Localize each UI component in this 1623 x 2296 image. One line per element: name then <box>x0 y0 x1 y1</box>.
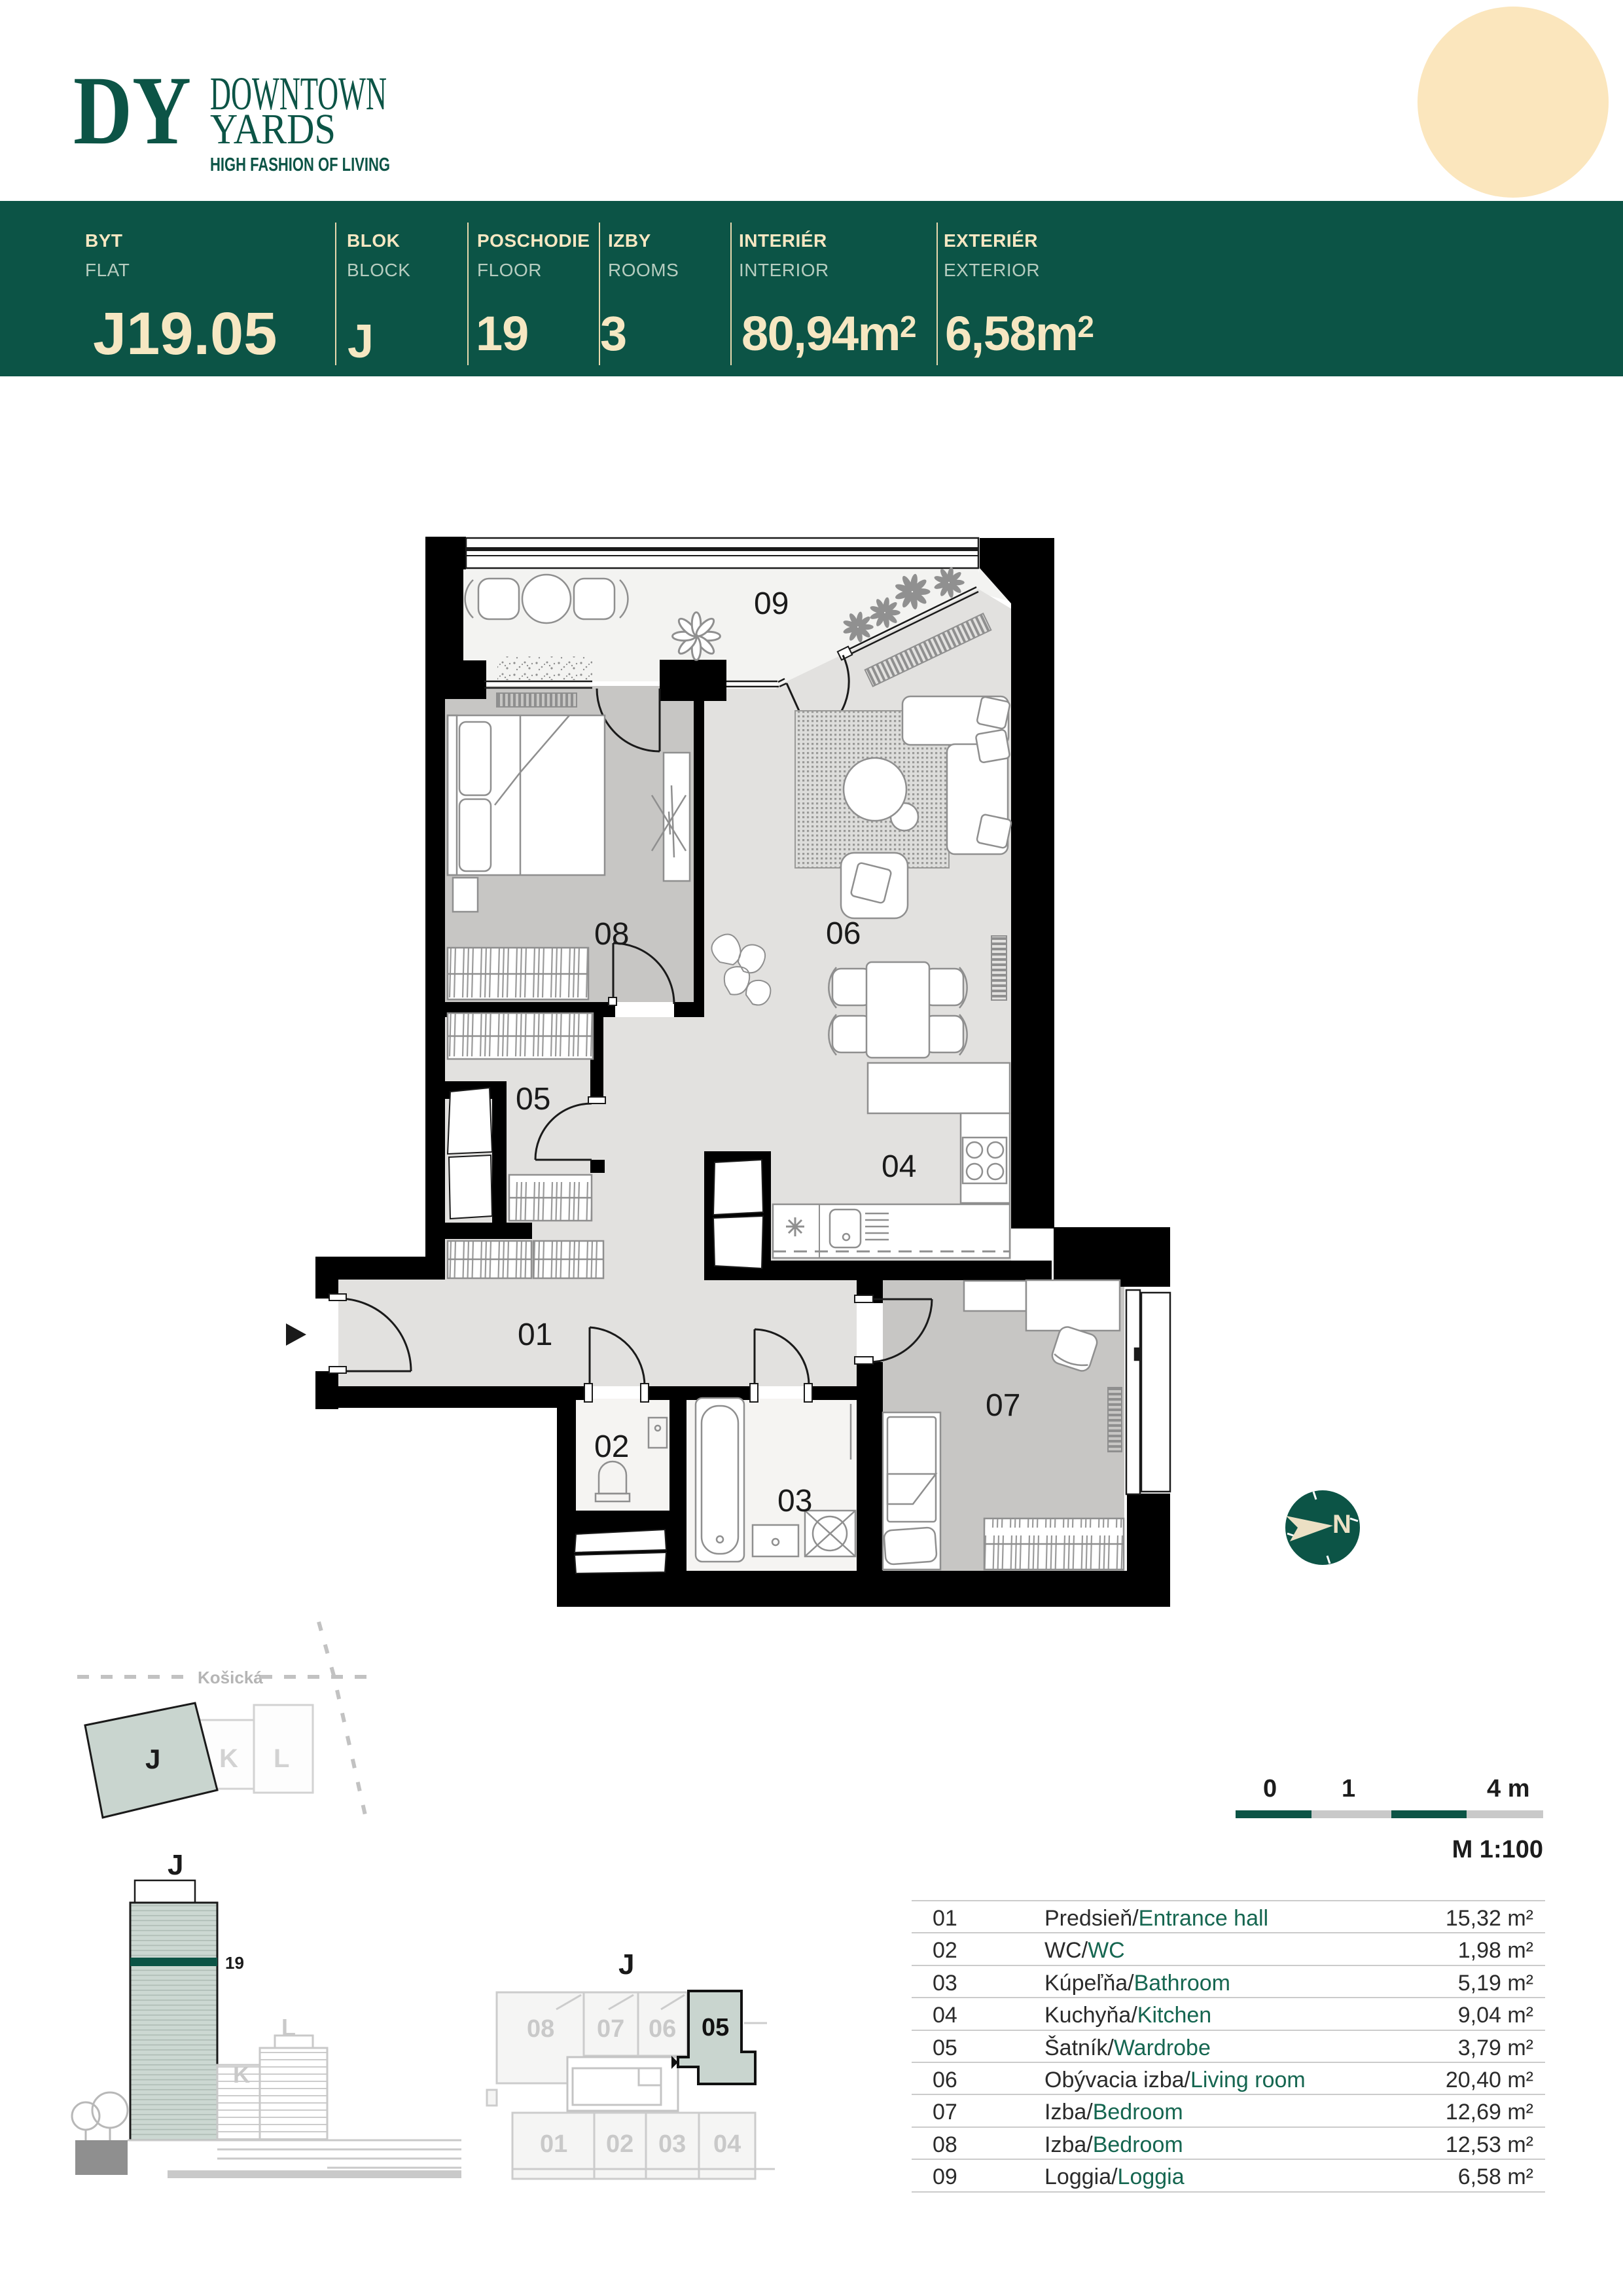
svg-text:04: 04 <box>713 2130 741 2158</box>
svg-text:05: 05 <box>702 2014 729 2041</box>
svg-text:06: 06 <box>649 2015 676 2043</box>
svg-text:08: 08 <box>594 917 629 952</box>
svg-text:J: J <box>618 1948 634 1981</box>
svg-text:K: K <box>219 1744 238 1773</box>
svg-text:L: L <box>281 2014 296 2041</box>
svg-text:05: 05 <box>516 1082 550 1117</box>
svg-text:08: 08 <box>527 2015 554 2043</box>
svg-text:07: 07 <box>986 1388 1020 1423</box>
svg-text:N: N <box>1332 1510 1351 1539</box>
svg-text:07: 07 <box>597 2015 624 2043</box>
svg-text:01: 01 <box>540 2130 567 2158</box>
svg-text:01: 01 <box>518 1318 552 1352</box>
svg-text:03: 03 <box>777 1484 812 1518</box>
svg-text:02: 02 <box>606 2130 633 2158</box>
svg-text:09: 09 <box>754 586 789 621</box>
svg-text:K: K <box>233 2061 250 2088</box>
svg-text:02: 02 <box>594 1429 629 1464</box>
svg-text:03: 03 <box>658 2130 686 2158</box>
svg-text:19: 19 <box>225 1953 244 1973</box>
svg-text:04: 04 <box>882 1149 916 1184</box>
svg-text:J: J <box>168 1849 183 1881</box>
svg-text:J: J <box>145 1744 160 1774</box>
svg-text:06: 06 <box>826 916 861 951</box>
svg-text:Košická: Košická <box>198 1668 263 1687</box>
svg-text:L: L <box>274 1744 289 1773</box>
